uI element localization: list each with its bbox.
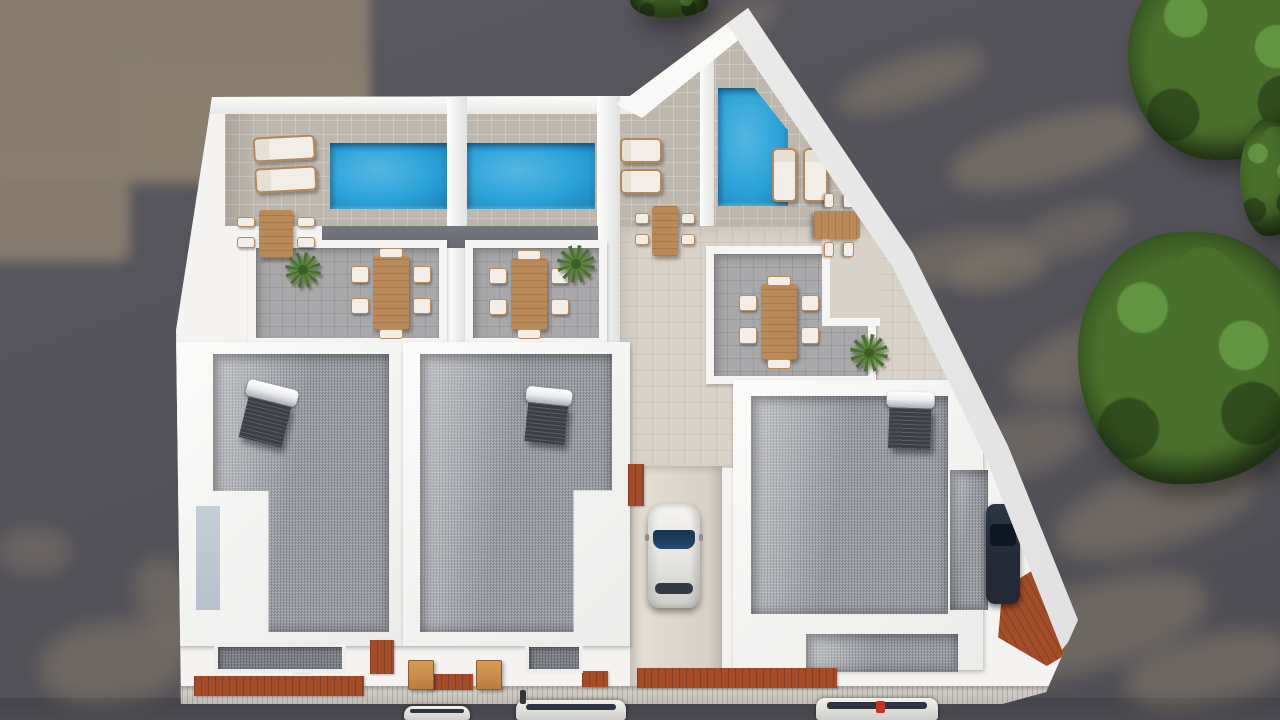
tree-tuft-top-center [630,0,708,18]
tree-layer [0,0,1280,720]
scene-aerial-villa-render [0,0,1280,720]
tree-cluster-right-large [1078,232,1280,484]
